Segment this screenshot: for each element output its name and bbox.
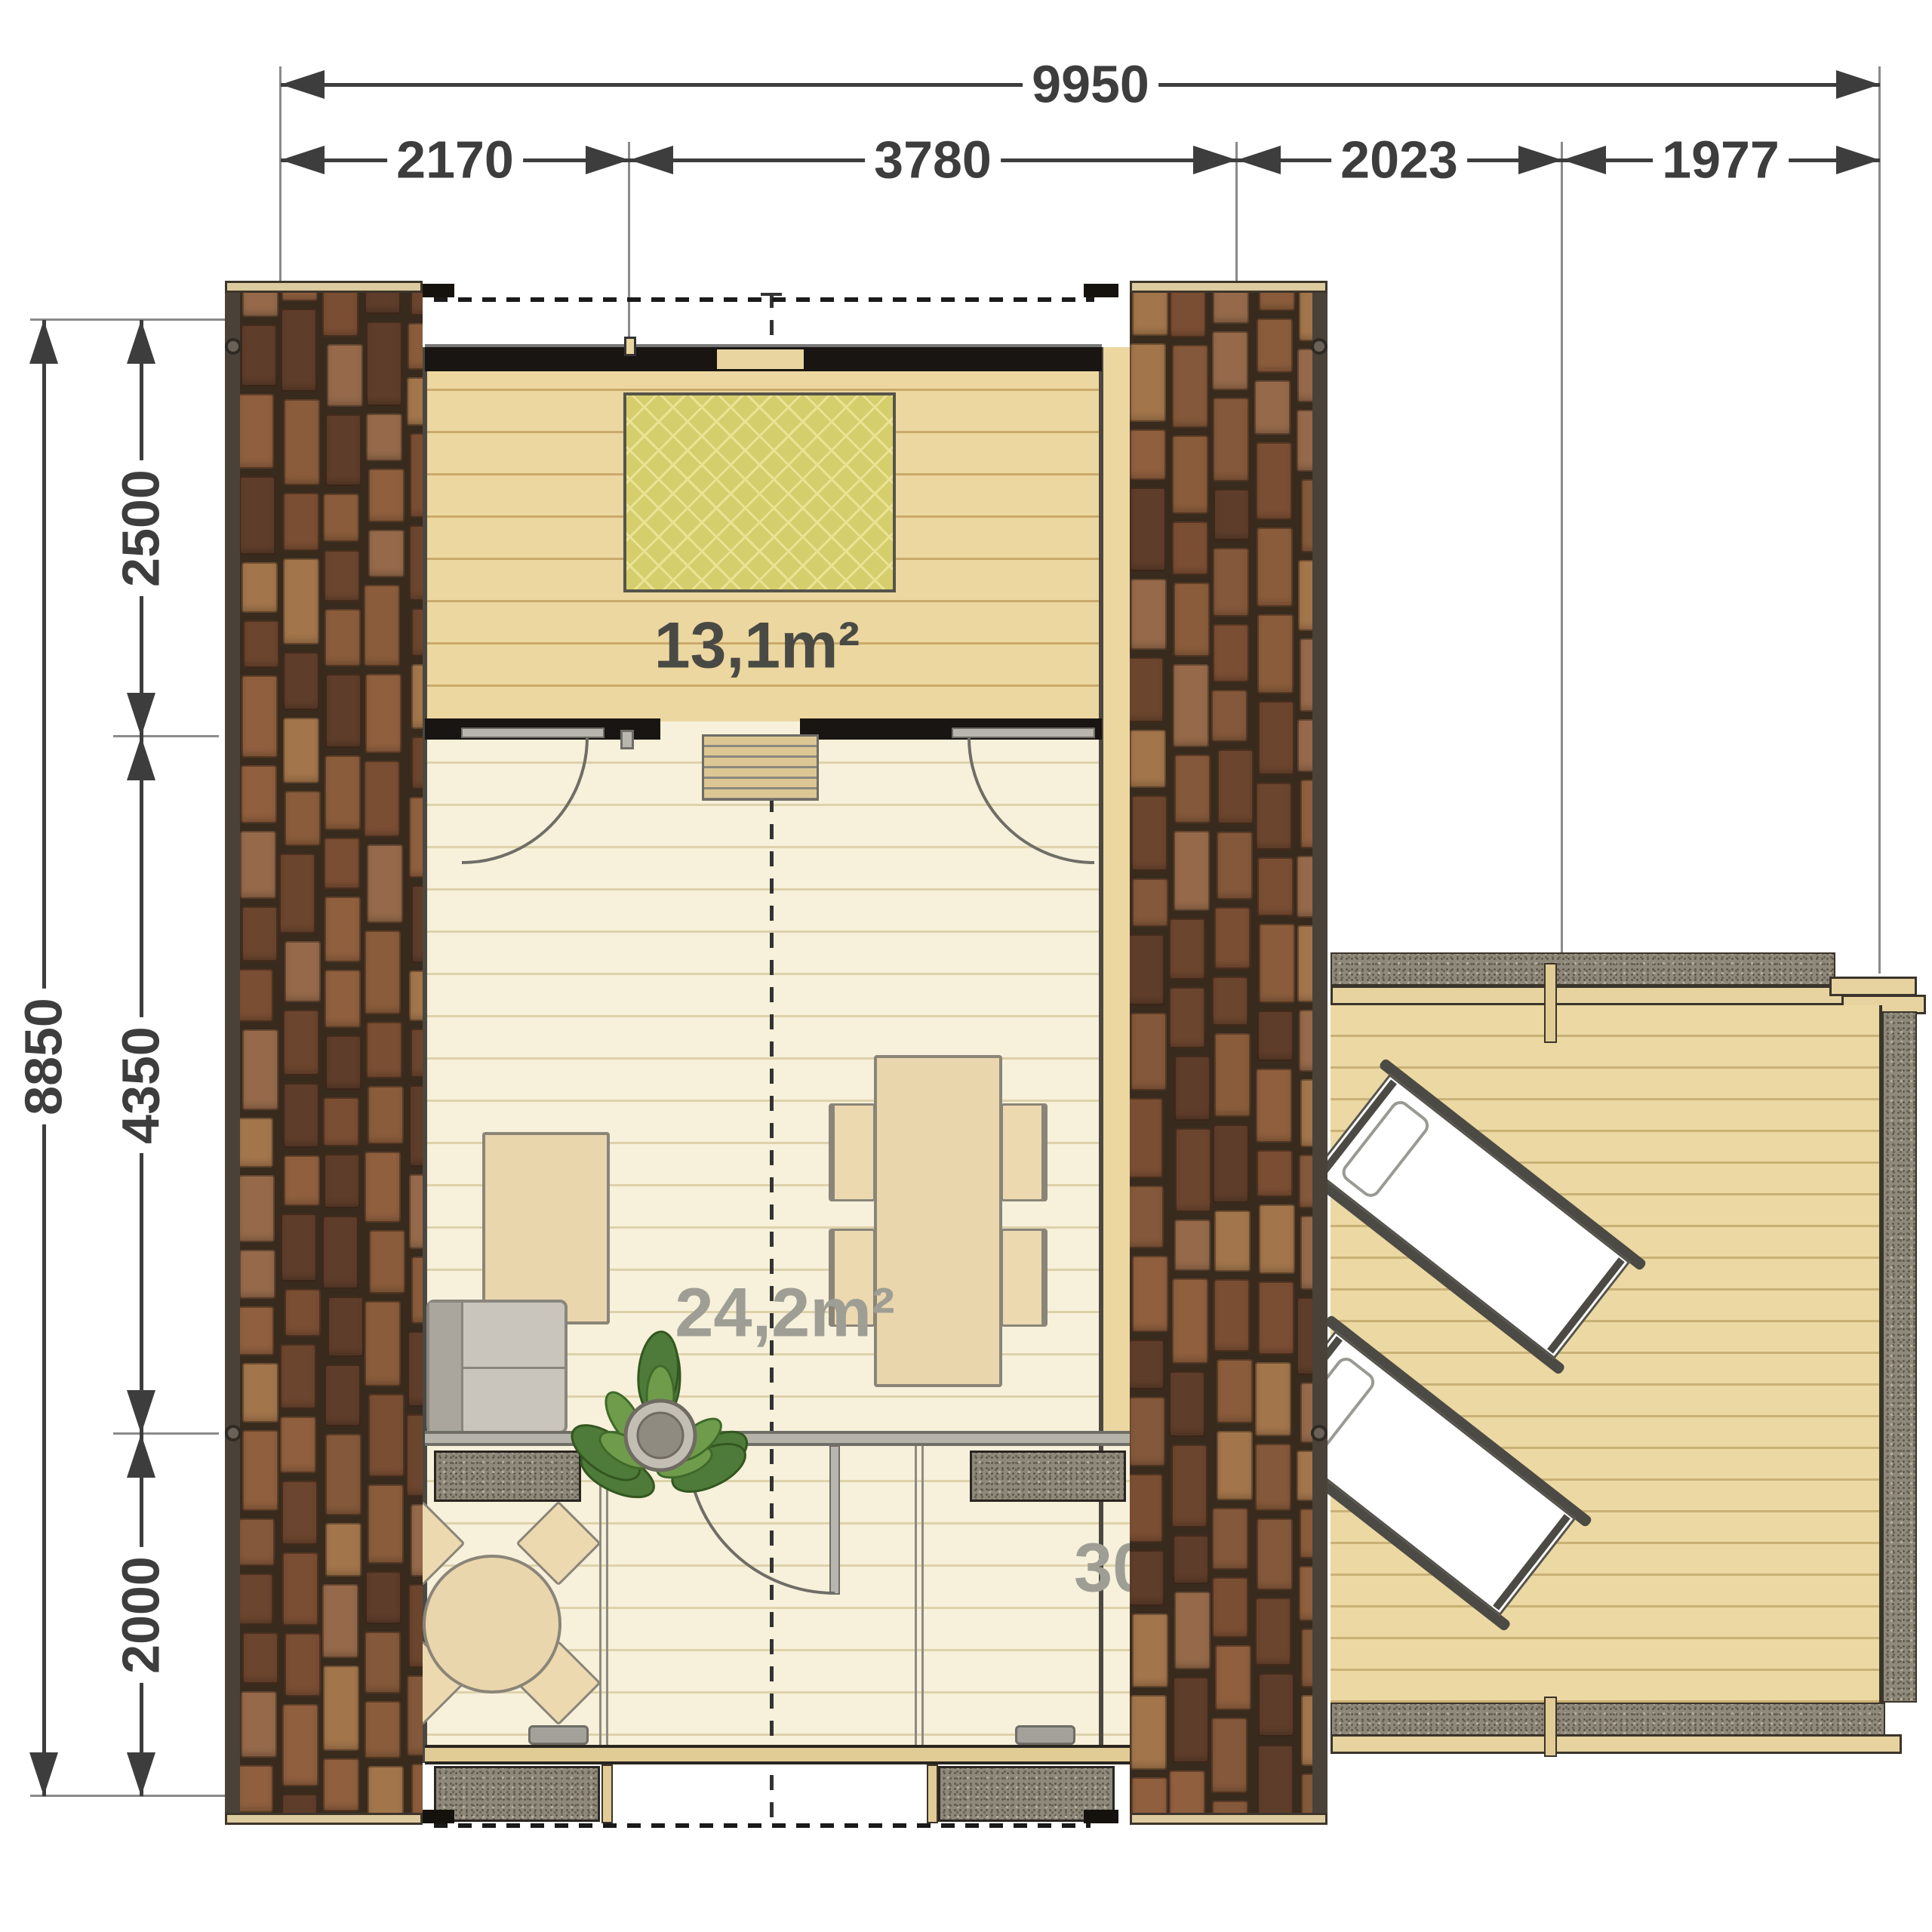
brick (365, 1301, 401, 1386)
brick (1256, 1069, 1292, 1142)
brick (1255, 1444, 1291, 1511)
brick (285, 941, 321, 1002)
brick (1132, 1614, 1168, 1687)
brick (322, 1216, 358, 1289)
dim-arrow-icon (629, 146, 673, 174)
brick (282, 1704, 318, 1786)
brick (1257, 528, 1293, 607)
brick (1174, 1592, 1211, 1669)
coffee-table (482, 1132, 610, 1324)
brick (240, 1306, 274, 1356)
brick (1297, 925, 1312, 1002)
brick (283, 1010, 319, 1075)
bedroom-rug (623, 392, 896, 592)
brick (280, 1417, 316, 1473)
dim-top-seg-1: 2170 (387, 132, 523, 188)
wall-frame (1311, 281, 1327, 1825)
brick (368, 469, 405, 522)
brick (285, 791, 321, 846)
brick (1131, 1695, 1167, 1770)
deck-top-fascia (1331, 986, 1872, 1005)
brick (1131, 579, 1167, 650)
dim-arrow-icon (1237, 146, 1281, 174)
dim-top-seg-2: 3780 (865, 132, 1001, 188)
brick (1213, 398, 1249, 482)
brick (1301, 479, 1312, 552)
brick (1214, 1211, 1251, 1272)
brick (1130, 1474, 1163, 1543)
glass-wall (425, 1431, 1130, 1446)
brick (240, 476, 275, 555)
brick (1299, 1155, 1312, 1208)
brick (240, 1175, 275, 1241)
brick (1297, 1451, 1312, 1501)
brick (1213, 290, 1249, 324)
brick (241, 765, 277, 823)
brick (327, 344, 363, 406)
brick (1259, 924, 1295, 1003)
brick (1300, 638, 1312, 712)
brick (1169, 1371, 1205, 1436)
brick (1217, 832, 1253, 900)
brick (281, 1481, 318, 1545)
slider-handle (1015, 1725, 1075, 1745)
brick (324, 1154, 360, 1208)
log-end-cap (1084, 284, 1118, 297)
brick (325, 414, 361, 486)
dim-arrow-icon (127, 1752, 155, 1796)
brick (322, 290, 358, 337)
brick (408, 1584, 423, 1668)
brick (283, 718, 319, 783)
brick (1212, 1508, 1248, 1571)
brick (322, 1584, 358, 1658)
brick (1175, 1128, 1211, 1212)
brick (1214, 1279, 1250, 1352)
brick (243, 620, 279, 668)
brick (1171, 1444, 1207, 1527)
brick (409, 971, 423, 1021)
dim-arrow-icon (127, 1390, 155, 1434)
wall-cap (1130, 1813, 1327, 1825)
dim-arrow-icon (1193, 146, 1237, 174)
log-end-cap (420, 284, 454, 297)
sofa-cushion-split (461, 1367, 565, 1369)
brick (1213, 624, 1249, 682)
brick (368, 530, 405, 577)
brick (1217, 749, 1254, 823)
brick (365, 1701, 401, 1758)
deck-post (1544, 963, 1557, 1043)
sofa-back (429, 1303, 463, 1431)
brick (366, 321, 402, 406)
brick (1174, 831, 1210, 911)
brick (1257, 857, 1294, 916)
brick (1213, 548, 1249, 617)
brick (411, 1257, 423, 1324)
brick (1130, 1550, 1164, 1606)
brick (1297, 1297, 1312, 1375)
brick (411, 290, 423, 315)
step-post (601, 1764, 613, 1823)
brick (241, 325, 277, 386)
right-log-wall-strip (1103, 347, 1130, 1434)
brick (1172, 521, 1208, 575)
dim-left-seg-3: 2000 (113, 1547, 169, 1683)
roof-overhang-dashed (434, 297, 1094, 302)
dim-arrow-icon (1518, 146, 1562, 174)
dim-left-seg-2: 4350 (113, 1017, 169, 1153)
brick (1130, 429, 1166, 480)
brick (1132, 1256, 1168, 1332)
step-post (927, 1764, 938, 1823)
brick (284, 1155, 320, 1206)
brick (365, 1632, 401, 1693)
brick (365, 674, 401, 753)
bolt-icon (225, 1425, 241, 1441)
brick (242, 1430, 278, 1511)
brick (1212, 331, 1248, 390)
divider-door-tick (620, 730, 634, 749)
brick (411, 664, 423, 729)
brick (1217, 1431, 1253, 1500)
brick (1212, 1577, 1248, 1637)
brick (411, 885, 423, 963)
dining-chair (1001, 1103, 1048, 1201)
brick (1258, 1673, 1294, 1737)
dim-arrow-icon (29, 320, 58, 364)
brick (241, 1691, 277, 1758)
brick (1256, 783, 1292, 850)
brick (283, 1083, 319, 1148)
dim-top-total: 9950 (1023, 57, 1158, 112)
brick (411, 1029, 423, 1078)
dim-arrow-icon (1836, 70, 1880, 99)
total-area-label: 30,0m² (1074, 1529, 1130, 1608)
brick (325, 970, 361, 1028)
stairs-unit (702, 734, 819, 801)
right-brick-wall (1130, 281, 1327, 1825)
brick (242, 290, 278, 317)
brick (411, 608, 423, 657)
brick (323, 1097, 359, 1147)
brick (365, 290, 401, 314)
brick (1131, 795, 1168, 872)
brick (364, 585, 400, 666)
window-center-tick (624, 337, 636, 356)
brick (1257, 1011, 1294, 1061)
brick (242, 1029, 278, 1110)
wall-cap (1130, 281, 1327, 293)
brick (1211, 1718, 1247, 1793)
brick (1174, 583, 1210, 656)
brick (1132, 878, 1168, 927)
dim-arrow-icon (127, 737, 155, 780)
deck-top-edge (1331, 952, 1835, 986)
brick (409, 1174, 423, 1249)
brick (1173, 1677, 1209, 1762)
brick (1130, 488, 1166, 571)
brick (369, 1230, 405, 1293)
brick (1297, 349, 1312, 402)
dim-left-seg-1: 2500 (113, 460, 169, 596)
wall-cap (225, 1813, 423, 1825)
log-end-cap (420, 1810, 454, 1823)
brick (1172, 435, 1208, 514)
brick (323, 1758, 359, 1811)
brick (1169, 918, 1205, 980)
brick (368, 1086, 404, 1144)
brick (1174, 755, 1211, 823)
brick (1214, 907, 1251, 968)
brick (281, 309, 317, 392)
brick (1130, 343, 1166, 422)
dim-top-seg-3: 2023 (1331, 132, 1467, 188)
brick-texture (240, 290, 423, 1822)
brick (241, 562, 278, 613)
brick (1172, 1278, 1208, 1364)
brick (1300, 1509, 1312, 1558)
brick (1257, 318, 1293, 373)
dim-top-seg-4: 1977 (1653, 132, 1789, 188)
brick (325, 755, 361, 830)
brick (1300, 1079, 1312, 1147)
deck-bottom-edge (1331, 1703, 1885, 1736)
brick (367, 844, 403, 923)
ridge-tick (761, 293, 782, 296)
left-brick-wall (225, 281, 423, 1825)
brick (240, 831, 276, 899)
brick (1298, 560, 1312, 631)
bolt-icon (225, 338, 241, 355)
brick (1211, 690, 1247, 742)
dim-arrow-icon (127, 693, 155, 737)
brick (1256, 442, 1292, 520)
brick (406, 1414, 423, 1497)
brick (1214, 1033, 1251, 1116)
brick (1259, 1204, 1295, 1274)
brick (280, 1344, 316, 1409)
dim-arrow-icon (586, 146, 629, 174)
bolt-icon (1311, 1425, 1327, 1441)
brick (242, 1632, 278, 1684)
brick (365, 1571, 401, 1625)
brick (240, 1574, 273, 1625)
brick (325, 674, 361, 748)
brick (1170, 290, 1206, 337)
brick (323, 1666, 359, 1752)
brick (1297, 856, 1312, 918)
brick (281, 1214, 317, 1282)
wall-frame (225, 281, 241, 1825)
divider-wall (800, 718, 1102, 740)
brick (411, 737, 423, 789)
bolt-icon (1311, 338, 1327, 355)
brick (1257, 1150, 1293, 1197)
brick (1257, 1745, 1294, 1823)
brick (283, 652, 319, 710)
brick (1258, 1281, 1294, 1355)
brick (1297, 410, 1312, 471)
brick (1130, 730, 1166, 788)
wall-cap (225, 281, 423, 293)
brick (1214, 489, 1250, 540)
brick (325, 609, 361, 667)
brick (325, 1523, 361, 1577)
brick (285, 1633, 321, 1697)
brick (1212, 977, 1248, 1026)
living-area-label: 24,2m² (675, 1274, 895, 1353)
brick (1173, 664, 1209, 747)
brick (1130, 1098, 1163, 1178)
brick (1299, 290, 1312, 341)
brick (325, 897, 361, 961)
brick (1259, 290, 1295, 311)
brick (411, 1764, 423, 1820)
brick (241, 675, 278, 758)
brick (285, 1289, 321, 1337)
brick (1301, 1629, 1312, 1687)
brick (283, 493, 319, 551)
brick (1257, 614, 1294, 694)
entry-step (434, 1766, 600, 1822)
brick (323, 494, 359, 543)
brick (240, 394, 274, 469)
dim-arrow-icon (29, 1752, 58, 1796)
brick (240, 1250, 275, 1299)
porch-label-clip: 30,0m² (425, 1446, 1130, 1743)
brick (409, 1085, 423, 1167)
brick (282, 1552, 318, 1625)
brick (328, 1297, 364, 1357)
brick (368, 1394, 405, 1477)
dining-chair (829, 1103, 875, 1201)
brick (368, 1484, 404, 1564)
brick (409, 525, 423, 601)
brick (1130, 1340, 1164, 1389)
brick (1130, 657, 1164, 722)
log-end-cap (1084, 1810, 1118, 1823)
brick (1301, 1695, 1312, 1766)
brick (407, 1675, 423, 1756)
brick (1130, 1397, 1165, 1466)
brick (407, 377, 423, 426)
dim-left-total: 8850 (16, 989, 72, 1124)
brick (408, 323, 423, 370)
brick (283, 558, 319, 645)
dim-arrow-icon (1562, 146, 1606, 174)
brick (240, 1765, 273, 1812)
brick (1130, 1186, 1164, 1248)
brick (1174, 1220, 1211, 1271)
brick (408, 1331, 423, 1407)
brick (1131, 1013, 1167, 1091)
brick (240, 1118, 273, 1168)
brick (325, 1364, 361, 1426)
brick-texture (1130, 290, 1312, 1822)
brick (242, 1363, 278, 1423)
brick (366, 1022, 402, 1078)
brick (1299, 1566, 1312, 1621)
dim-arrow-icon (281, 70, 325, 99)
extension-line (1878, 66, 1881, 974)
brick (410, 433, 423, 517)
brick (240, 1518, 275, 1566)
brick (1254, 380, 1291, 435)
brick (284, 399, 320, 485)
brick (1258, 701, 1294, 775)
floor-plan-canvas: 9950 2170 3780 2023 1977 8850 2500 4350 … (0, 0, 1932, 1932)
brick (1255, 1362, 1291, 1436)
brick (1132, 290, 1168, 336)
brick (324, 550, 360, 601)
brick (1257, 1518, 1293, 1591)
brick (1130, 934, 1164, 1005)
deck-bottom-fascia (1331, 1734, 1902, 1754)
brick (1173, 1535, 1209, 1584)
brick (1300, 1216, 1312, 1290)
brick (1217, 1359, 1253, 1423)
brick (1174, 1056, 1211, 1121)
bedroom-area-label: 13,1m² (654, 609, 860, 684)
brick (1215, 1645, 1251, 1710)
top-door-opening (717, 347, 804, 371)
deck-corner-board (1829, 977, 1917, 996)
roof-overhang-dashed (434, 1823, 1091, 1828)
brick (1297, 719, 1312, 772)
slider-handle (528, 1725, 589, 1745)
brick (325, 1434, 361, 1515)
dim-arrow-icon (127, 320, 155, 364)
brick (240, 969, 273, 1023)
deck-right-edge (1882, 1011, 1917, 1703)
brick (365, 1152, 401, 1223)
brick (364, 761, 400, 837)
dim-arrow-icon (127, 1434, 155, 1478)
extension-line (1561, 142, 1563, 974)
brick (1172, 345, 1208, 428)
brick (409, 797, 423, 878)
deck-post (1544, 1697, 1557, 1757)
brick (325, 1035, 361, 1090)
sofa (426, 1300, 568, 1434)
brick (1255, 1598, 1291, 1666)
brick (324, 838, 360, 890)
dim-arrow-icon (281, 146, 325, 174)
dim-arrow-icon (1836, 146, 1880, 174)
brick (411, 1504, 423, 1577)
brick (1300, 780, 1312, 848)
bottom-sill (425, 1745, 1130, 1764)
brick (1299, 1010, 1312, 1071)
brick (365, 931, 401, 1014)
dining-chair (1001, 1229, 1048, 1327)
brick (1213, 1124, 1249, 1203)
brick (241, 906, 278, 961)
brick (1169, 987, 1205, 1048)
brick (366, 414, 402, 461)
brick (279, 854, 315, 934)
